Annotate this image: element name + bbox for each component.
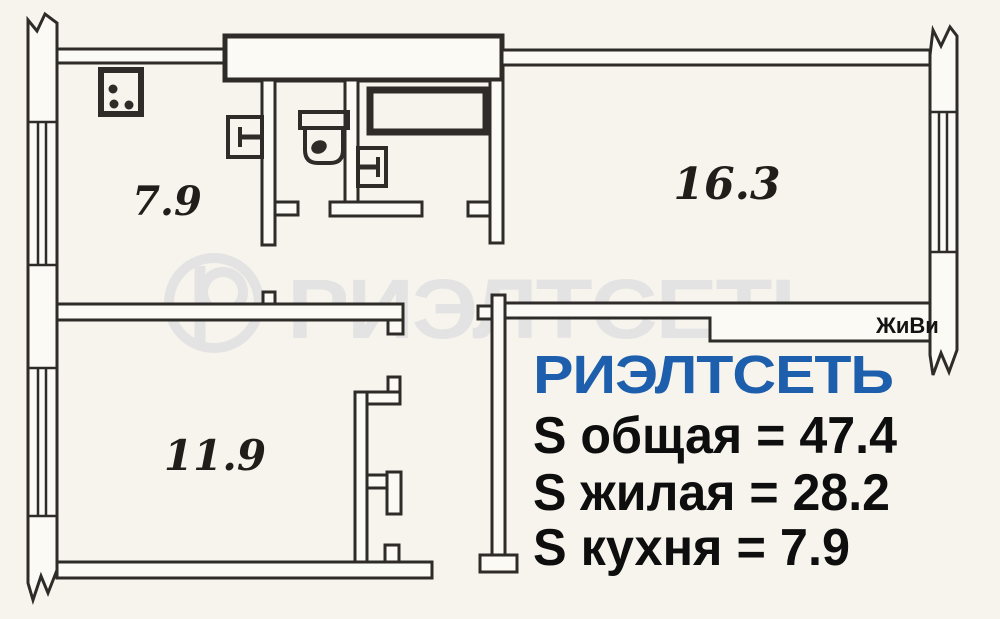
wall-kitchen-bedroom-jamb-up bbox=[263, 292, 275, 304]
brand-title: РИЭЛТСЕТЬ bbox=[533, 345, 893, 405]
exterior-wall-top-left bbox=[57, 49, 225, 63]
wall-closet-mid-bar bbox=[387, 472, 401, 514]
washbasin-icon bbox=[358, 148, 386, 186]
wall-bath-bottom-jamb bbox=[468, 202, 490, 216]
exterior-wall-top-right bbox=[502, 50, 930, 65]
wall-closet-top bbox=[367, 392, 400, 404]
wall-bath-right bbox=[490, 80, 503, 243]
wall-closet-top-jamb bbox=[388, 377, 400, 392]
living-area-line: S жилая = 28.2 bbox=[533, 464, 890, 522]
exterior-wall-left bbox=[28, 14, 57, 600]
info-block: РИЭЛТСЕТЬ S общая = 47.4 S жилая = 28.2 … bbox=[533, 345, 897, 577]
kitchen-sink-icon bbox=[228, 117, 262, 157]
wall-bedroom-bottom-jamb bbox=[385, 545, 399, 562]
wall-tag-text: ЖиВи bbox=[875, 313, 939, 338]
toilet-icon bbox=[300, 112, 348, 163]
wall-closet-vertical bbox=[355, 392, 367, 563]
wall-kitchen-bedroom bbox=[57, 304, 403, 320]
bedroom-area-label: 11.9 bbox=[164, 431, 266, 480]
wall-kitchen-bedroom-jamb-down bbox=[388, 320, 403, 334]
bathtub-icon bbox=[370, 90, 486, 132]
wall-bedroom-bottom bbox=[57, 562, 432, 578]
wall-hallway-vertical bbox=[492, 295, 505, 555]
wall-hallway-bottom-cap bbox=[480, 555, 517, 572]
wall-wc-left bbox=[262, 80, 275, 245]
stove-icon bbox=[101, 70, 141, 114]
floorplan-svg: РИЭЛТСЕТЬ bbox=[0, 0, 1000, 619]
floorplan-image: РИЭЛТСЕТЬ bbox=[0, 0, 1000, 619]
kitchen-area-line: S кухня = 7.9 bbox=[533, 519, 850, 577]
entrance-block bbox=[225, 36, 502, 80]
living-room-area-label: 16.3 bbox=[673, 159, 780, 210]
wall-hallway-jamb bbox=[478, 306, 492, 319]
wall-bath-bottom bbox=[330, 202, 422, 216]
wall-closet-mid-tab bbox=[367, 475, 387, 488]
wall-wc-left-jamb bbox=[275, 202, 298, 215]
kitchen-area-label: 7.9 bbox=[132, 178, 202, 225]
total-area-line: S общая = 47.4 bbox=[533, 407, 897, 465]
